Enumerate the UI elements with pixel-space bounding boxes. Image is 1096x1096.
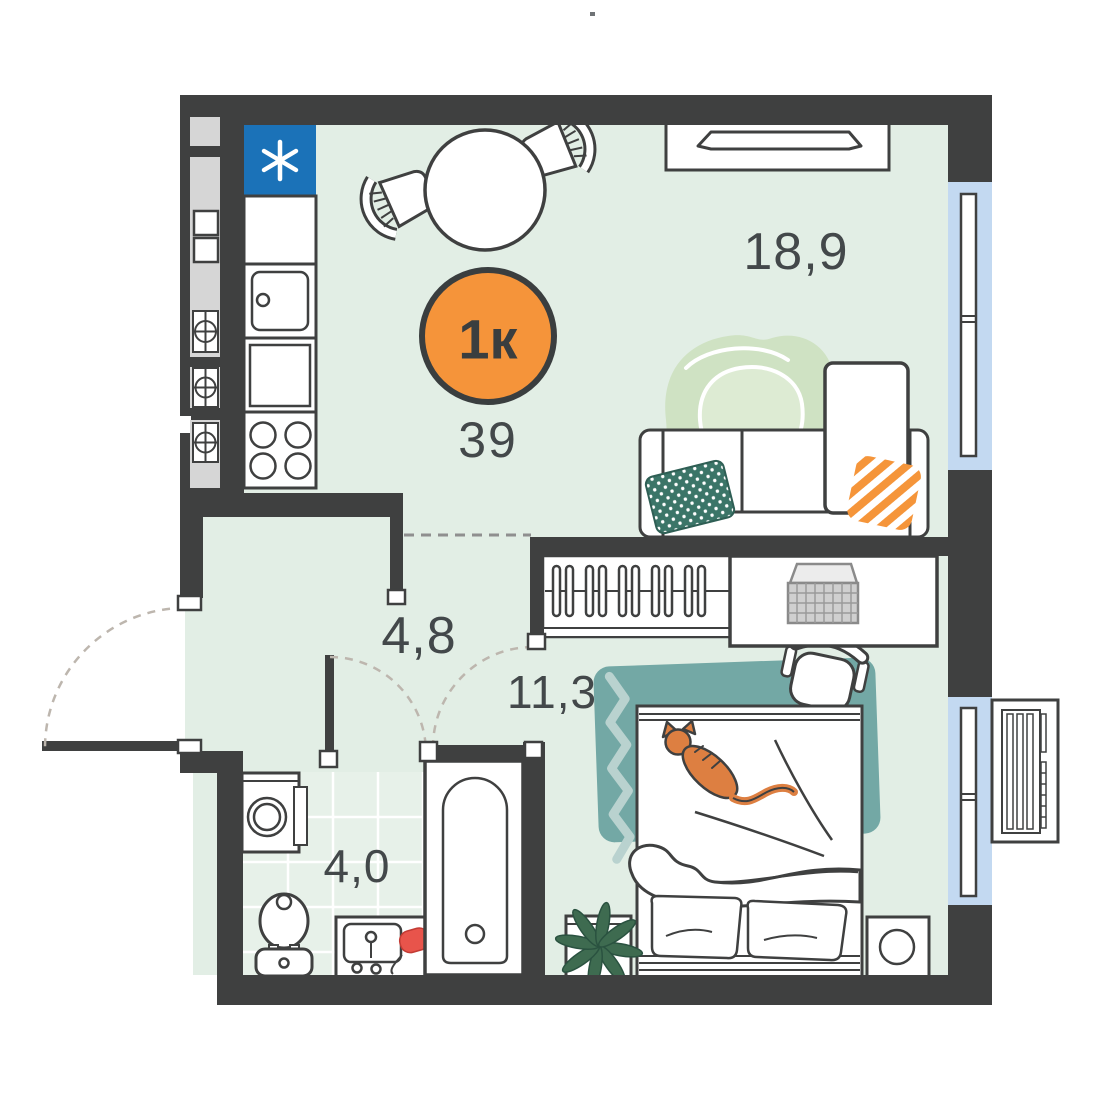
window-bedroom [948,697,992,905]
wall-bath-left [217,751,243,1005]
bed [630,706,862,977]
bathroom-door-leaf [325,655,334,753]
wall-kitchen-stub [390,517,403,593]
dining-table [425,130,545,250]
circle-cross-duct-icon [193,368,218,407]
bed-pillow [652,896,847,960]
wall-bath-bedroom-divider [523,742,545,975]
bedroom-area-label: 11,3 [507,666,597,718]
bathroom-area-label: 4,0 [324,840,391,892]
wall-right-top [948,95,992,182]
floorplan-page: 18,9 11,3 4,8 4,0 1к 39 [0,0,1096,1096]
living-room-area-label: 18,9 [743,223,848,281]
toilet [256,894,312,976]
circle-cross-duct-icon [193,423,218,462]
floorplan-canvas: 18,9 11,3 4,8 4,0 1к 39 [0,0,1096,1096]
wall-notch [178,416,191,433]
unit-badge: 1к [422,270,554,402]
laptop-icon [788,564,858,623]
total-area-label: 39 [458,412,518,468]
wall-hall-left [180,517,203,598]
kitchen-sink [244,264,316,338]
ac-unit [992,700,1058,842]
washing-machine [242,773,307,852]
kitchen-block [244,125,316,488]
wall-tub-lintel [434,745,525,760]
tv-unit [666,118,889,170]
wall-right-middle [948,470,992,697]
kitchen-counter [244,338,316,412]
entrance-door [42,608,185,751]
hallway-area-label: 4,8 [381,607,456,665]
kitchen-stove [244,412,316,488]
unit-badge-label: 1к [458,308,518,371]
wall-bottom [217,975,992,1005]
sofa-pillow-striped [845,454,923,532]
nightstand [867,917,929,977]
wall-kitchen-bottom [180,493,403,517]
vent-shaft [190,117,220,488]
artifact-dot [590,12,595,16]
tv-icon [698,132,861,149]
wall-top [180,95,992,125]
window-living [948,182,992,470]
wall-wardrobe-stub [530,537,543,636]
wall-interior-living-bedroom [530,537,948,556]
wardrobe [543,556,732,637]
bathtub [425,761,523,975]
desk [730,556,937,646]
kitchen-cabinet [244,196,316,264]
circle-cross-duct-icon [193,311,218,352]
entrance-door-swing-arc [45,608,185,748]
entrance-door-leaf [42,741,181,751]
